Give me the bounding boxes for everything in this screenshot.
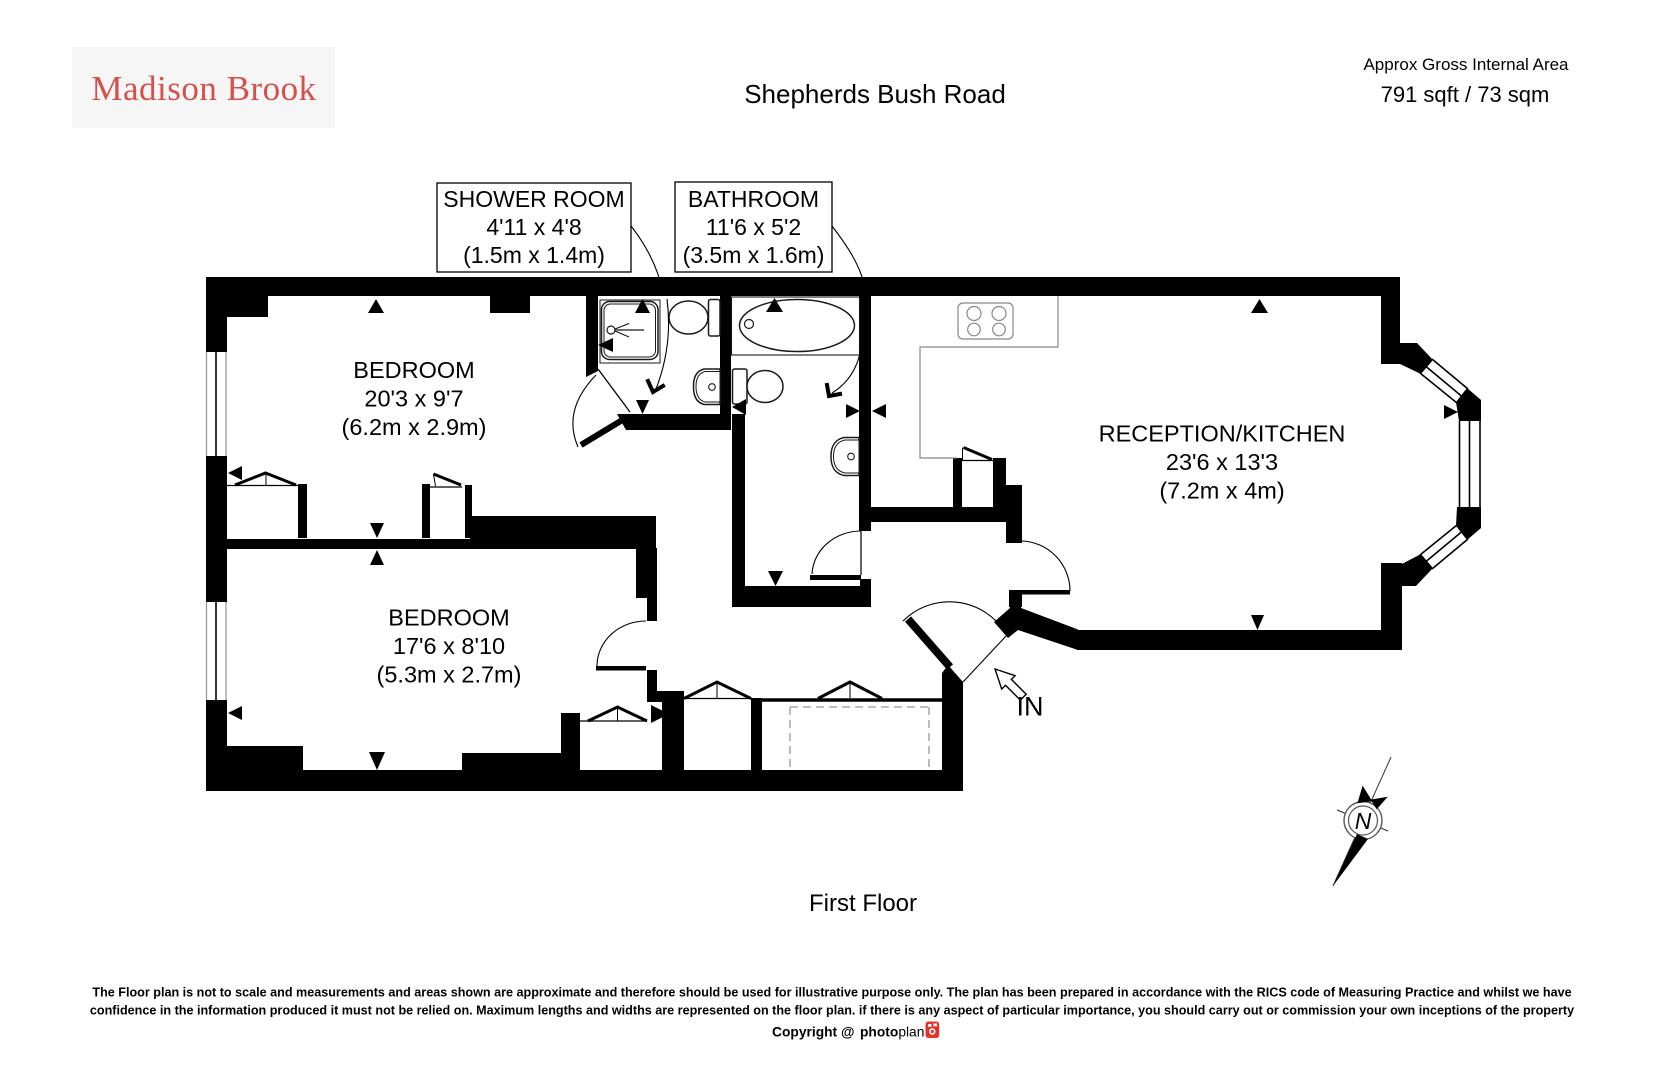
svg-text:SHOWER ROOM: SHOWER ROOM xyxy=(443,186,624,212)
svg-text:Approx Gross Internal Area: Approx Gross Internal Area xyxy=(1363,55,1569,74)
svg-text:Shepherds Bush Road: Shepherds Bush Road xyxy=(744,79,1006,109)
svg-text:(7.2m x 4m): (7.2m x 4m) xyxy=(1159,478,1284,504)
svg-text:confidence in the information: confidence in the information produced i… xyxy=(90,1004,1574,1018)
svg-text:Madison Brook: Madison Brook xyxy=(91,69,316,108)
svg-text:20'3 x 9'7: 20'3 x 9'7 xyxy=(364,386,463,412)
svg-text:BEDROOM: BEDROOM xyxy=(353,357,474,383)
svg-text:BATHROOM: BATHROOM xyxy=(688,186,819,212)
svg-text:N: N xyxy=(1355,808,1372,834)
svg-text:17'6 x 8'10: 17'6 x 8'10 xyxy=(393,633,505,659)
svg-text:11'6 x 5'2: 11'6 x 5'2 xyxy=(706,214,801,240)
svg-text:(6.2m x 2.9m): (6.2m x 2.9m) xyxy=(342,414,487,440)
svg-text:23'6 x 13'3: 23'6 x 13'3 xyxy=(1166,449,1278,475)
svg-text:Copyright @photoplan: Copyright @photoplan xyxy=(772,1025,924,1040)
svg-text:The Floor plan is not to scale: The Floor plan is not to scale and measu… xyxy=(92,986,1571,1000)
svg-text:4'11 x 4'8: 4'11 x 4'8 xyxy=(486,214,581,240)
svg-text:791 sqft / 73 sqm: 791 sqft / 73 sqm xyxy=(1381,82,1550,107)
svg-text:(5.3m x 2.7m): (5.3m x 2.7m) xyxy=(377,662,522,688)
svg-text:(1.5m x 1.4m): (1.5m x 1.4m) xyxy=(463,242,605,268)
svg-text:(3.5m x 1.6m): (3.5m x 1.6m) xyxy=(683,242,825,268)
svg-text:First Floor: First Floor xyxy=(809,890,917,917)
svg-text:RECEPTION/KITCHEN: RECEPTION/KITCHEN xyxy=(1099,421,1346,447)
svg-text:BEDROOM: BEDROOM xyxy=(388,605,509,631)
svg-text:IN: IN xyxy=(1017,692,1044,722)
